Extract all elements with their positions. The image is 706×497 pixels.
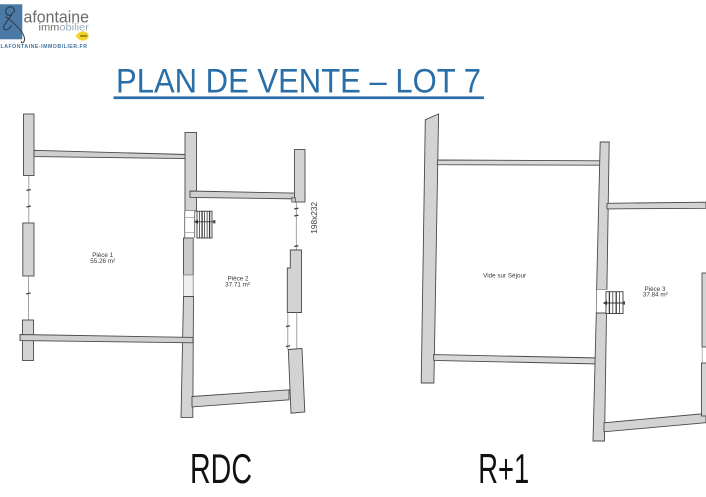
svg-text:55.26 m²: 55.26 m² [90,258,115,265]
svg-text:RDC: RDC [190,445,252,492]
svg-text:198x232: 198x232 [310,202,319,234]
svg-text:LAFONTAINE-IMMOBILIER.FR: LAFONTAINE-IMMOBILIER.FR [1,44,88,50]
svg-text:37.84 m²: 37.84 m² [643,292,668,299]
svg-text:R+1: R+1 [478,445,529,492]
svg-text:Vide sur Séjour: Vide sur Séjour [483,272,526,279]
svg-text:37.71 m²: 37.71 m² [225,281,250,288]
svg-text:PLAN DE VENTE – LOT 7: PLAN DE VENTE – LOT 7 [116,63,481,101]
